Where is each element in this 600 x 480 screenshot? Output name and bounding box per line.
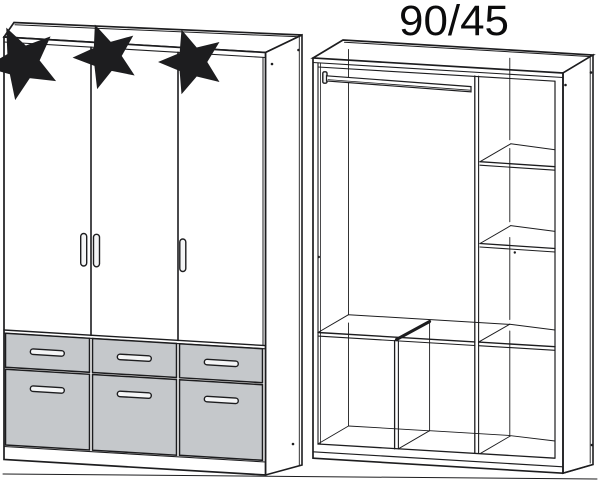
drawer-front[interactable] — [93, 375, 177, 456]
shelf — [480, 144, 555, 170]
shelf-pin-dot — [514, 251, 516, 253]
wardrobe-diagram: 90/45 — [0, 0, 600, 480]
fitting-dot — [564, 84, 567, 87]
carcass-frame — [313, 50, 563, 474]
door-handle[interactable] — [180, 239, 186, 272]
fitting-dot — [292, 443, 295, 446]
drawer-handle[interactable] — [204, 396, 238, 404]
fitting-dot — [271, 63, 274, 66]
bottom-compartments — [318, 426, 555, 454]
drawer-front[interactable] — [6, 369, 90, 450]
door-handle[interactable] — [81, 234, 87, 267]
drawer-handle[interactable] — [30, 386, 64, 394]
shelf-full-width — [318, 315, 555, 351]
fitting-dot — [297, 49, 300, 52]
technical-drawing-canvas: 90/45 — [0, 0, 600, 480]
drawer-handle[interactable] — [204, 359, 238, 367]
drawer-handle[interactable] — [117, 391, 151, 399]
drawer-front[interactable] — [180, 380, 263, 461]
wardrobe-front-view — [4, 23, 302, 476]
drawer-block — [6, 333, 263, 460]
fitting-dot — [318, 256, 320, 258]
fitting-dot — [590, 71, 593, 74]
drawer-handle[interactable] — [117, 354, 151, 362]
top-board — [313, 40, 593, 78]
size-label: 90/45 — [399, 0, 509, 45]
side-panel-right — [563, 55, 593, 473]
fitting-dot — [591, 444, 594, 447]
drawer-handle[interactable] — [30, 349, 64, 357]
vertical-divider-right — [475, 58, 510, 453]
door-handle[interactable] — [94, 234, 100, 266]
star-icon — [6, 45, 38, 77]
wardrobe-interior-view — [313, 40, 593, 473]
ground-line — [3, 474, 597, 479]
star-icon — [178, 48, 205, 75]
side-panel-right — [266, 35, 303, 475]
shelf — [480, 226, 555, 254]
star-icon — [92, 42, 120, 69]
